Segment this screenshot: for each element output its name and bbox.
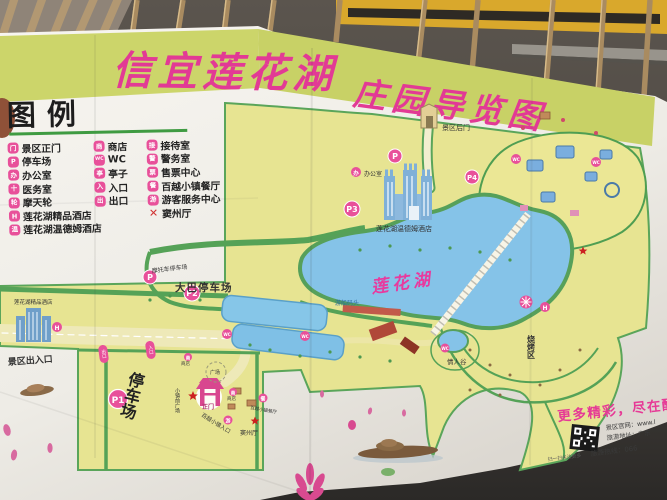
ticket-icon: 票: [147, 167, 158, 178]
legend-item-shop: 商商店: [93, 139, 146, 154]
p-marker-backgate: P: [392, 152, 398, 161]
pavilion-icon: 亭: [94, 168, 105, 179]
main-gate-label: 正门: [202, 403, 214, 411]
shop-label: 商店: [227, 395, 236, 402]
parking-icon: P: [8, 156, 19, 167]
boat-dock-label: 游船码头: [335, 299, 359, 307]
ferris-wheel-icon: 轮: [9, 197, 20, 208]
shop-label: 商店: [181, 360, 190, 367]
boutique-label: 莲花湖精品酒店: [14, 298, 53, 306]
police-icon: 警: [147, 153, 158, 164]
shop-marker: 商: [186, 355, 191, 362]
visitor-center-icon: 游: [148, 194, 159, 205]
legend-label: 出口: [109, 193, 129, 207]
office-icon: 办: [8, 170, 19, 181]
restaurant-icon: 餐: [147, 181, 158, 192]
lovers-valley-label: 情人谷: [447, 357, 467, 366]
map-photo: 信宜莲花湖 庄园导览图: [0, 0, 667, 500]
hotel-icon: 温: [9, 224, 20, 235]
douzhou-hall-label: 窦州厅: [240, 429, 258, 437]
legend-label: 商店: [107, 139, 127, 153]
plaza-label: 广场: [210, 369, 220, 376]
visitor-marker: 游: [225, 418, 230, 425]
legend-label: 售票中心: [161, 165, 200, 180]
legend-label: 景区正门: [21, 140, 60, 155]
legend-column-1: 门景区正门 P停车场 办办公室 十医务室 轮摩天轮 H莲花湖精品酒店 温莲花湖温…: [7, 140, 95, 237]
bus-parking-label: 大巴停车场: [175, 281, 233, 294]
legend-label: 莲花湖温德姆酒店: [23, 221, 102, 237]
p4-marker: P4: [467, 174, 477, 182]
x-mark-icon: ✕: [148, 208, 159, 219]
legend-item-wc: WCWC: [94, 152, 147, 167]
legend-panel: 图例 门景区正门 P停车场 办办公室 十医务室 轮摩天轮 H莲花湖精品酒店 温莲…: [7, 95, 262, 236]
map-title-left: 信宜莲花湖: [112, 48, 339, 98]
town-front-plaza-label: 小镇前广场: [174, 387, 180, 414]
svg-text:WC: WC: [223, 332, 230, 337]
exit-icon: 出: [95, 195, 106, 206]
back-gate-icon: [421, 104, 437, 128]
legend-item-exit: 出出口: [95, 193, 148, 208]
p3-marker: P3: [346, 205, 357, 214]
legend-label: WC: [108, 154, 126, 165]
legend-item-entrance: 入入口: [94, 180, 147, 195]
legend-heading: 图例: [7, 95, 260, 130]
map-photo-svg: 信宜莲花湖 庄园导览图: [0, 0, 667, 500]
legend-label: 亭子: [108, 166, 128, 180]
legend-item-douzhou-hall: ✕窦州厅: [148, 204, 261, 220]
wyndham-label: 莲花湖温德姆酒店: [376, 224, 432, 233]
entrance-icon: 入: [94, 182, 105, 193]
legend-label: 入口: [108, 180, 128, 194]
svg-text:H: H: [542, 305, 547, 312]
wyndham-hotel-building: [384, 167, 432, 220]
main-gate-icon: 门: [7, 143, 18, 154]
hotel-icon: H: [9, 211, 20, 222]
legend-label: 摩天轮: [23, 195, 53, 210]
shop-marker: 商: [231, 390, 236, 397]
svg-text:WC: WC: [441, 346, 448, 351]
svg-text:WC: WC: [512, 157, 519, 162]
legend-label: 窦州厅: [162, 206, 192, 221]
svg-text:WC: WC: [301, 334, 308, 339]
legend-column-3: 接接待室 警警务室 票售票中心 餐百越小镇餐厅 游游客服务中心 ✕窦州厅: [146, 136, 261, 234]
office-marker: 办: [353, 169, 359, 177]
back-gate-label: 景区后门: [442, 123, 470, 132]
legend-label: 办公室: [22, 168, 52, 183]
legend-label: 接待室: [160, 138, 190, 153]
legend-label: 警务室: [161, 151, 191, 166]
legend-label: 停车场: [22, 154, 52, 169]
legend-label: 游客服务中心: [162, 191, 221, 206]
wc-icon: WC: [94, 155, 105, 166]
qr-code: [569, 424, 599, 452]
reception-icon: 接: [146, 140, 157, 151]
shop-icon: 商: [93, 141, 104, 152]
restaurant-marker: 餐: [259, 396, 266, 403]
legend-label: 医务室: [22, 181, 52, 196]
legend-item-pavilion: 亭亭子: [94, 166, 147, 181]
legend-column-2: 商商店 WCWC 亭亭子 入入口 出出口: [93, 139, 148, 235]
office-label: 办公室: [364, 170, 382, 178]
svg-text:WC: WC: [592, 160, 599, 165]
svg-text:H: H: [54, 325, 59, 332]
legend-item-wyndham-hotel: 温莲花湖温德姆酒店: [9, 221, 95, 236]
medical-cross-icon: 十: [8, 183, 19, 194]
